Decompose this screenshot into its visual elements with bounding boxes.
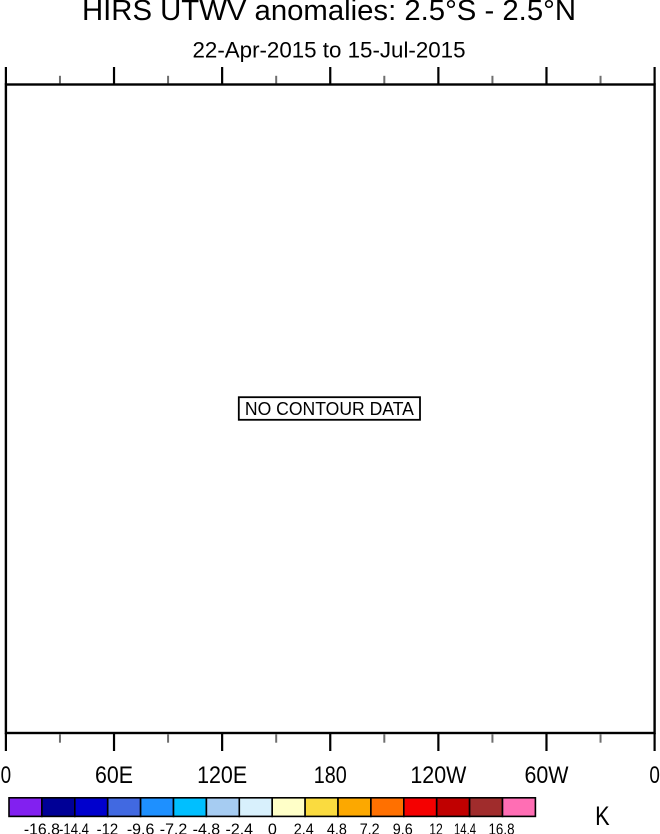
svg-text:120W: 120W: [410, 762, 466, 789]
svg-text:12: 12: [429, 822, 443, 834]
svg-text:60W: 60W: [524, 762, 568, 789]
svg-text:14.4: 14.4: [454, 822, 476, 834]
svg-text:9.6: 9.6: [393, 822, 413, 834]
svg-text:NO CONTOUR DATA: NO CONTOUR DATA: [245, 399, 414, 419]
svg-text:K: K: [595, 801, 610, 831]
svg-text:0: 0: [268, 822, 277, 834]
svg-text:180: 180: [314, 762, 347, 789]
svg-text:-16.8: -16.8: [24, 822, 60, 834]
svg-text:-12: -12: [97, 822, 119, 834]
svg-text:22-Apr-2015 to 15-Jul-2015: 22-Apr-2015 to 15-Jul-2015: [193, 38, 466, 63]
svg-text:-14.4: -14.4: [59, 822, 89, 834]
svg-text:-9.6: -9.6: [127, 822, 155, 834]
svg-text:-7.2: -7.2: [160, 822, 188, 834]
svg-text:4.8: 4.8: [327, 822, 347, 834]
svg-text:16.8: 16.8: [489, 822, 515, 834]
svg-text:7.2: 7.2: [360, 822, 380, 834]
svg-text:60E: 60E: [95, 762, 133, 789]
svg-text:0: 0: [649, 762, 660, 789]
svg-text:HIRS UTWV anomalies: 2.5°S - 2: HIRS UTWV anomalies: 2.5°S - 2.5°N: [82, 0, 576, 27]
svg-text:2.4: 2.4: [294, 822, 314, 834]
svg-text:-2.4: -2.4: [226, 822, 254, 834]
svg-text:0: 0: [1, 762, 12, 789]
svg-text:120E: 120E: [197, 762, 247, 789]
svg-text:-4.8: -4.8: [193, 822, 221, 834]
